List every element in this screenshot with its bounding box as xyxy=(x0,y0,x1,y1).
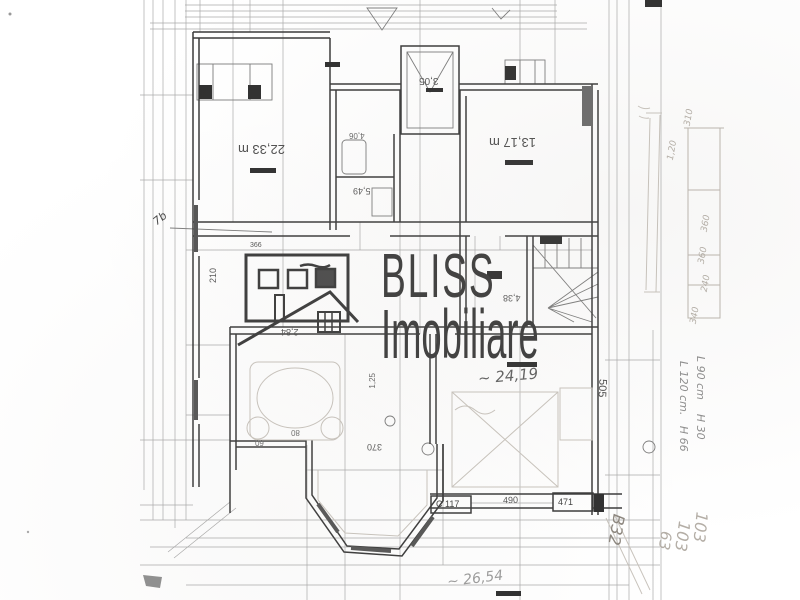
room-area-label: 5,49 xyxy=(353,186,371,195)
dimension-label: 80 xyxy=(291,428,300,436)
room-area-label: 13,17 m xyxy=(489,136,536,149)
dimension-label: 490 xyxy=(503,496,518,506)
dimension-label: 471 xyxy=(558,498,573,507)
handwritten-note: L 90 cm H 30 xyxy=(695,356,706,440)
dimension-label: 2,84 xyxy=(281,327,299,336)
column-circle xyxy=(385,416,395,426)
dimension-label: 210 xyxy=(209,268,218,283)
room-area-label: 4,06 xyxy=(349,131,365,139)
bay-window-outer xyxy=(306,440,443,556)
staircase xyxy=(533,238,598,322)
dimension-label: 1,25 xyxy=(369,373,377,389)
table-sketch xyxy=(257,368,333,428)
handwritten-note: 103 xyxy=(672,520,692,552)
handwritten-note: B32 xyxy=(605,513,626,547)
scan-dot xyxy=(27,531,29,533)
leader-line-7b xyxy=(170,228,272,232)
dimension-label: 60 xyxy=(255,438,264,446)
room-area-label: 3,05 xyxy=(419,75,438,85)
scan-speck xyxy=(143,575,162,588)
bath-fixture xyxy=(372,188,392,216)
scan-dot xyxy=(9,13,12,16)
handwritten-note: L 120 cm. H 66 xyxy=(678,361,689,452)
dimension-label: C 117 xyxy=(436,500,459,509)
room-area-label: 4,38 xyxy=(503,293,521,302)
dimension-label: 366 xyxy=(250,242,262,249)
column-circle xyxy=(422,443,434,455)
handwritten-note: 63 xyxy=(656,530,674,551)
scanned-floor-plan-page: BLISS Imobiliare 22,33 m 13,17 m 3,05 4,… xyxy=(0,0,800,600)
watermark-subtitle-text: Imobiliare xyxy=(381,299,539,369)
dimension-label: 370 xyxy=(367,442,382,451)
dimension-label: 505 xyxy=(596,379,608,398)
bath-fixture xyxy=(342,140,366,174)
room-area-label: 22,33 m xyxy=(238,143,285,156)
